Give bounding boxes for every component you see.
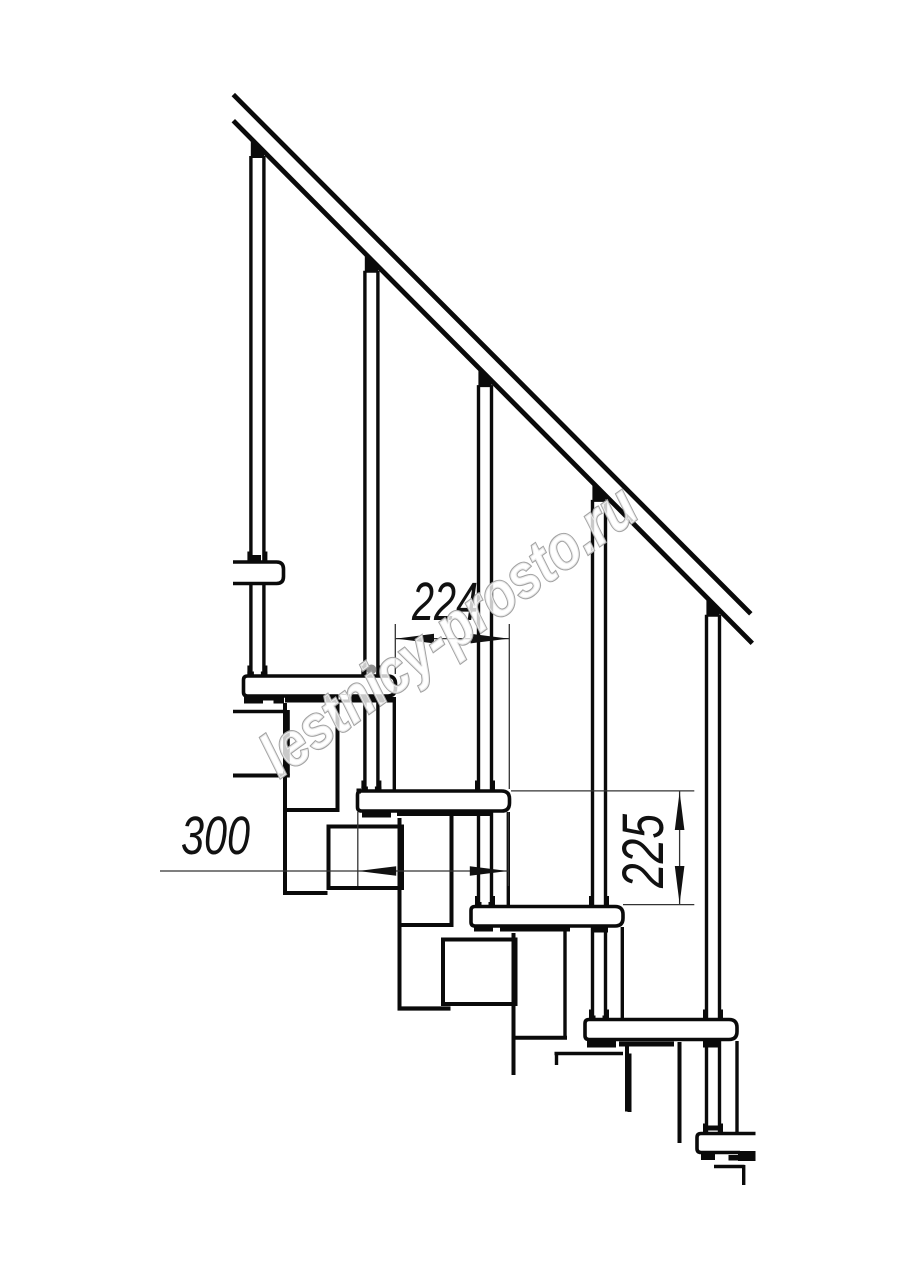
svg-text:lestnicy-prosto.ru: lestnicy-prosto.ru xyxy=(247,471,650,790)
svg-text:300: 300 xyxy=(181,806,250,866)
svg-text:225: 225 xyxy=(611,813,676,888)
